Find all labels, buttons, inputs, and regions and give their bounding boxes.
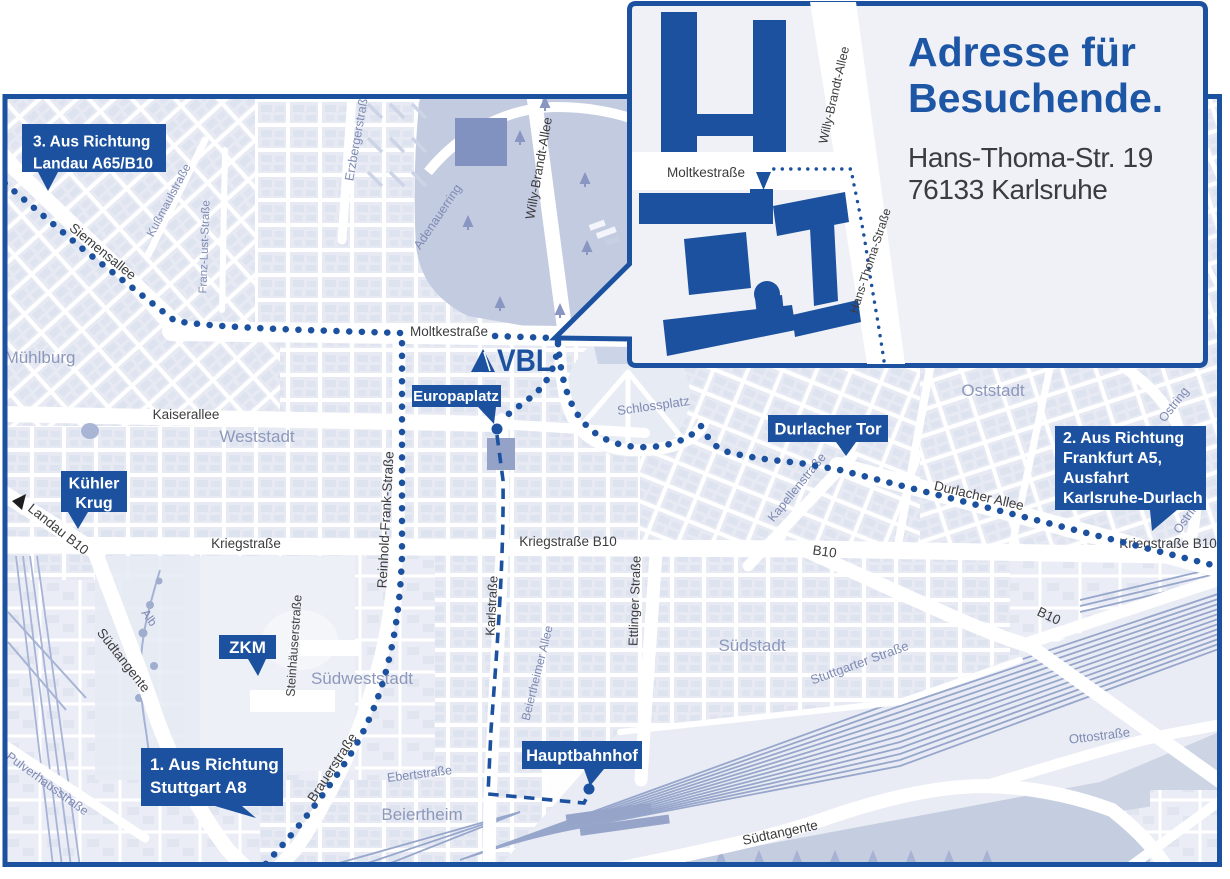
svg-text:Kriegstraße B10: Kriegstraße B10 — [519, 534, 617, 549]
svg-text:Moltkestraße: Moltkestraße — [667, 165, 745, 180]
svg-text:Landau A65/B10: Landau A65/B10 — [33, 156, 153, 173]
svg-text:Hans-Thoma-Str. 19: Hans-Thoma-Str. 19 — [908, 142, 1153, 173]
svg-text:VBL: VBL — [497, 342, 553, 378]
svg-text:3. Aus Richtung: 3. Aus Richtung — [33, 134, 150, 151]
svg-text:Karlsruhe-Durlach: Karlsruhe-Durlach — [1063, 490, 1203, 507]
svg-text:Ausfahrt: Ausfahrt — [1063, 470, 1129, 487]
svg-text:ZKM: ZKM — [229, 638, 266, 657]
svg-text:Beiertheim: Beiertheim — [381, 805, 462, 824]
svg-text:Kriegstraße: Kriegstraße — [211, 536, 281, 551]
svg-text:Adresse für: Adresse für — [908, 29, 1136, 75]
svg-text:Frankfurt A5,: Frankfurt A5, — [1063, 450, 1162, 467]
svg-text:Mühlburg: Mühlburg — [5, 348, 76, 367]
svg-text:Moltkestraße: Moltkestraße — [410, 324, 488, 339]
svg-text:2. Aus Richtung: 2. Aus Richtung — [1063, 430, 1184, 447]
svg-text:Kühler: Kühler — [69, 476, 120, 493]
svg-text:Europaplatz: Europaplatz — [413, 388, 499, 405]
svg-text:1. Aus Richtung: 1. Aus Richtung — [150, 755, 279, 774]
svg-text:Besuchende.: Besuchende. — [908, 75, 1163, 121]
svg-text:76133 Karlsruhe: 76133 Karlsruhe — [908, 174, 1107, 205]
svg-text:Oststadt: Oststadt — [961, 381, 1025, 400]
svg-text:Kaiserallee: Kaiserallee — [153, 407, 220, 422]
svg-text:Ettlinger Straße: Ettlinger Straße — [625, 555, 643, 646]
svg-text:Hauptbahnhof: Hauptbahnhof — [526, 747, 638, 765]
svg-text:Südweststadt: Südweststadt — [311, 669, 413, 688]
svg-text:Weststadt: Weststadt — [219, 427, 295, 446]
svg-text:Südstadt: Südstadt — [718, 636, 785, 655]
svg-text:Durlacher Tor: Durlacher Tor — [775, 421, 883, 439]
svg-text:Stuttgart A8: Stuttgart A8 — [150, 778, 247, 797]
svg-text:Krug: Krug — [75, 495, 112, 512]
